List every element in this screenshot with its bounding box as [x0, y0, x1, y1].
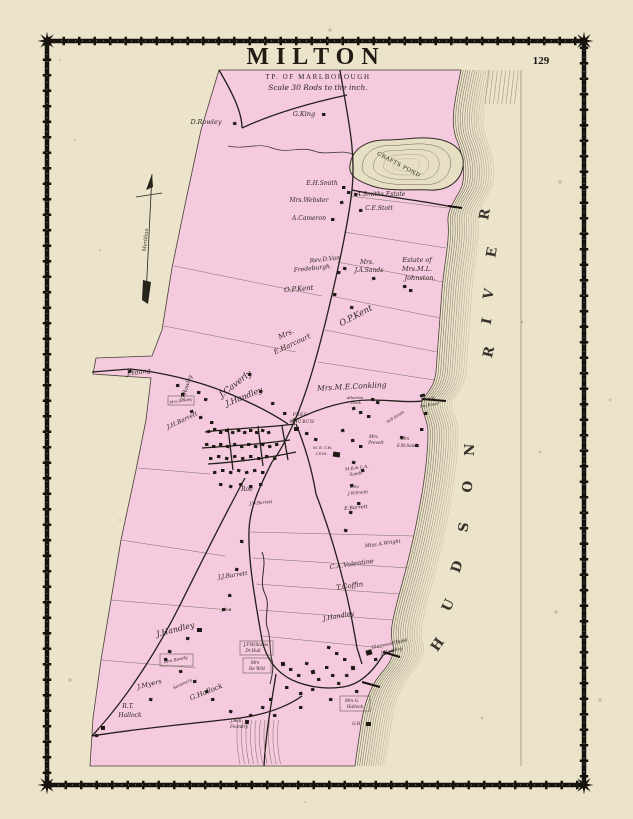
map-label: G.H.: [352, 721, 362, 726]
map-label: Mrs.M.L.: [401, 265, 432, 273]
map-label: Foundry: [229, 724, 248, 729]
map-label: Estate of: [401, 256, 433, 264]
map-label: E.H.Smith: [305, 180, 338, 187]
map-label: R.T.: [121, 703, 134, 710]
map-label: M.E.CH.: [313, 445, 333, 450]
map-label: J.C.B.: [221, 607, 233, 612]
map-label: Roe: [240, 486, 253, 493]
map-label: Hallock: [346, 704, 364, 709]
map-label: Mrs: [400, 436, 409, 441]
map-label: Mrs.Webster: [289, 197, 330, 204]
map-scale-note: Scale 30 Rods to the inch.: [268, 83, 367, 92]
map-label: Dock: [350, 400, 361, 405]
river-letter: O: [460, 480, 477, 493]
map-label: De Witt: [248, 666, 265, 671]
map-label: CEM.: [316, 451, 329, 456]
milton-map: D.RowleyG.KingCRAFTS PONDE.H.SmithA.Smit…: [0, 0, 633, 819]
crafts-pond: [350, 138, 464, 190]
map-label: Prevett: [367, 440, 384, 445]
map-subtitle: TP. OF MARLBOROUGH: [265, 73, 370, 81]
map-label: PRES.: [293, 412, 310, 418]
page-number: 129: [533, 55, 550, 67]
map-label: J.A.Sands: [353, 267, 384, 274]
corner-star-icon: [575, 776, 594, 795]
map-label: J.Bell: [230, 718, 243, 723]
map-label: C.E.Stott: [365, 205, 393, 212]
map-label: Mrs.: [359, 259, 374, 266]
map-label: Mrs: [250, 660, 259, 665]
corner-star-icon: [575, 32, 594, 51]
map-label: J.F.Williams: [243, 642, 268, 647]
map-label: G.King: [293, 110, 315, 118]
corner-star-icon: [38, 32, 57, 51]
map-label: Johnston.: [402, 274, 435, 282]
river-letter: N: [462, 443, 478, 456]
map-label: Hallock: [117, 712, 142, 719]
map-label: Dr.Hull: [244, 648, 261, 653]
map-label: S.M.Sands: [397, 443, 420, 448]
corner-star-icon: [38, 776, 57, 795]
map-label: Mrs.: [368, 434, 379, 439]
map-title: MILTON: [246, 44, 385, 70]
map-label: A.Smiths Estate: [356, 191, 406, 198]
map-label: CHURCH: [290, 419, 315, 425]
atlas-page: D.RowleyG.KingCRAFTS PONDE.H.SmithA.Smit…: [0, 0, 633, 819]
map-label: D.Rowley: [189, 118, 221, 126]
map-label: Mrs G.: [344, 698, 359, 703]
map-label: Rev.: [350, 484, 360, 489]
map-label: A.Cameron: [291, 215, 326, 222]
